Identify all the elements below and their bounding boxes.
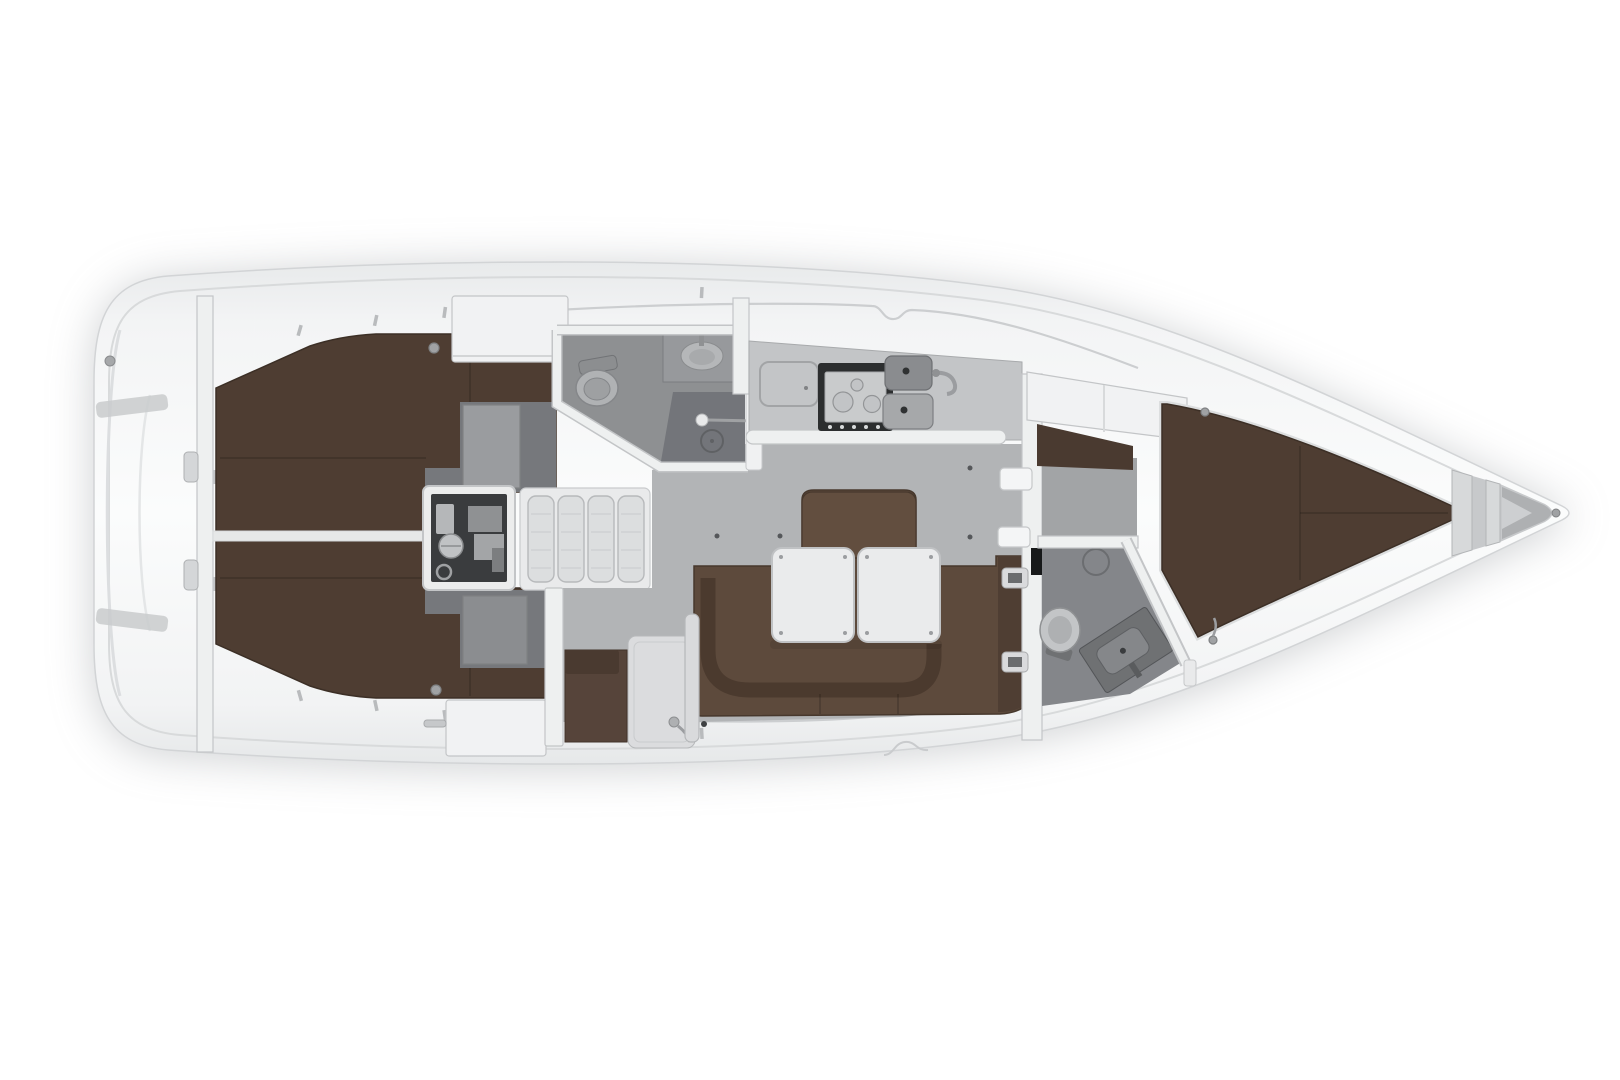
- step-tread: [558, 496, 584, 582]
- cabin-door-starboard: [463, 596, 527, 664]
- cabinet: [452, 296, 568, 362]
- shower-drain-dot: [710, 439, 714, 443]
- step-tread: [528, 496, 554, 582]
- reading-light-icon: [429, 343, 439, 353]
- sink-basin: [689, 349, 715, 365]
- chart-lamp-icon: [669, 717, 679, 727]
- faucet-base: [932, 369, 940, 377]
- stern-bulkhead-wall: [197, 296, 213, 752]
- chain-locker-bulkhead: [1452, 470, 1472, 556]
- hinge-bracket: [1002, 652, 1028, 672]
- stanchion-icon: [700, 287, 704, 298]
- counter-fiddle-rail: [746, 430, 1006, 444]
- burner-icon: [851, 379, 863, 391]
- step-tread: [618, 496, 644, 582]
- stove: [818, 363, 893, 431]
- reading-light-icon: [1209, 636, 1217, 644]
- door-latch-icon: [998, 527, 1030, 547]
- toilet-seat: [1048, 616, 1072, 644]
- table-leaf-right: [858, 548, 940, 642]
- stove-knob-icon: [864, 425, 868, 429]
- yacht-floor-plan: [0, 0, 1620, 1080]
- nav-seat-backrest: [565, 650, 619, 674]
- cabin-door-port: [463, 405, 520, 488]
- handle-icon: [424, 720, 446, 727]
- sink-basin-lower: [883, 394, 933, 429]
- berth-centerline-divider: [213, 531, 429, 541]
- hinge-icon: [184, 452, 198, 482]
- companionway-steps: [520, 488, 650, 590]
- nav-partition-wall: [545, 588, 563, 746]
- engine-part: [468, 506, 502, 532]
- shower-head-icon: [696, 414, 708, 426]
- door-catch-icon: [1000, 468, 1032, 490]
- forward-cabin-floor: [1042, 458, 1137, 540]
- toilet-seat: [584, 378, 610, 400]
- table-leaf-left: [772, 548, 854, 642]
- stove-knob-icon: [828, 425, 832, 429]
- engine-part: [436, 504, 454, 534]
- bow-fitting-icon: [1552, 509, 1560, 517]
- chain-locker-bulkhead: [1486, 480, 1500, 546]
- hinge-icon: [184, 560, 198, 590]
- door-post: [1184, 660, 1196, 686]
- reading-light-icon: [1201, 408, 1209, 416]
- stanchion-icon: [700, 728, 704, 739]
- shower-floor: [660, 392, 745, 467]
- reading-light-icon: [431, 685, 441, 695]
- deck-cabinet-top: [452, 296, 568, 362]
- stove-knob-icon: [840, 425, 844, 429]
- stove-knob-icon: [876, 425, 880, 429]
- fridge-latch-icon: [804, 386, 808, 390]
- cabinet: [446, 700, 546, 756]
- stern-fitting-icon: [105, 356, 115, 366]
- step-tread: [588, 496, 614, 582]
- burner-icon: [864, 396, 881, 413]
- burner-icon: [833, 392, 853, 412]
- drain-icon: [903, 368, 910, 375]
- stove-knob-icon: [852, 425, 856, 429]
- engine-compartment: [423, 486, 515, 590]
- galley-partition-wall: [733, 298, 749, 394]
- hinge-bracket: [1002, 568, 1028, 588]
- floor-bolt-icon: [701, 721, 707, 727]
- engine-part: [492, 548, 504, 572]
- grab-pole: [685, 614, 699, 742]
- yacht-floor-plan-canvas: [0, 0, 1620, 1080]
- drain-icon: [901, 407, 908, 414]
